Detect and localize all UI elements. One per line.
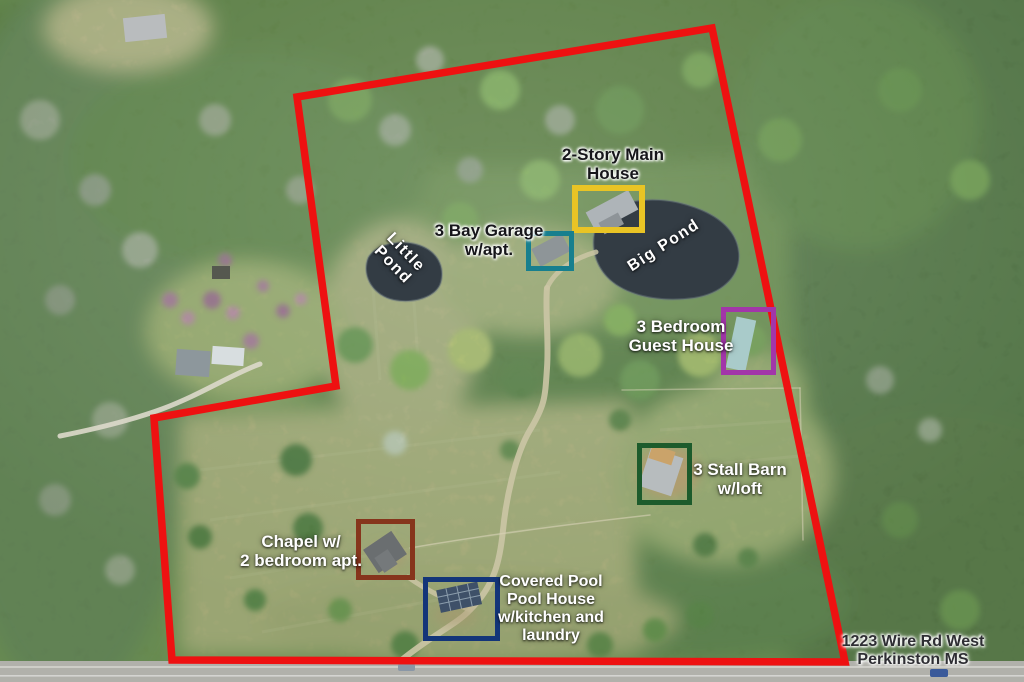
guest-house-label-line1: 3 Bedroom: [629, 317, 734, 336]
chapel-label: Chapel w/ 2 bedroom apt.: [240, 532, 362, 570]
car2-icon: [930, 669, 948, 677]
pool-house-label-line1: Covered Pool: [498, 573, 604, 591]
barn-box: [637, 443, 692, 505]
main-house-box: [572, 185, 645, 233]
pool-house-label-line4: laundry: [498, 627, 604, 645]
guest-house-label: 3 Bedroom Guest House: [629, 317, 734, 355]
garage-label-line1: 3 Bay Garage: [435, 221, 544, 240]
pool-house-label: Covered Pool Pool House w/kitchen and la…: [498, 573, 604, 645]
neighbor-shed2-roof: [211, 346, 244, 366]
pool-house-box: [423, 577, 500, 641]
barn-label-line2: w/loft: [693, 479, 787, 498]
neighbor-house-roof: [123, 14, 167, 42]
pool-house-label-line3: w/kitchen and: [498, 609, 604, 627]
main-house-label: 2-Story Main House: [562, 145, 664, 183]
pool-house-label-line2: Pool House: [498, 591, 604, 609]
trailer: [212, 266, 230, 279]
aerial-property-photo: 2-Story Main House 3 Bay Garage w/apt. L…: [0, 0, 1024, 682]
barn-label-line1: 3 Stall Barn: [693, 460, 787, 479]
garage-label: 3 Bay Garage w/apt.: [435, 221, 544, 259]
chapel-label-line1: Chapel w/: [240, 532, 362, 551]
address-line2: Perkinston MS: [842, 651, 985, 669]
chapel-label-line2: 2 bedroom apt.: [240, 551, 362, 570]
chapel-box: [356, 519, 415, 580]
main-house-label-line2: House: [562, 164, 664, 183]
address-label: 1223 Wire Rd West Perkinston MS: [842, 633, 985, 669]
barn-label: 3 Stall Barn w/loft: [693, 460, 787, 498]
guest-house-label-line2: Guest House: [629, 336, 734, 355]
car-icon: [398, 664, 415, 671]
address-line1: 1223 Wire Rd West: [842, 633, 985, 651]
neighbor-shed-roof: [175, 349, 211, 377]
garage-label-line2: w/apt.: [435, 240, 544, 259]
main-house-label-line1: 2-Story Main: [562, 145, 664, 164]
